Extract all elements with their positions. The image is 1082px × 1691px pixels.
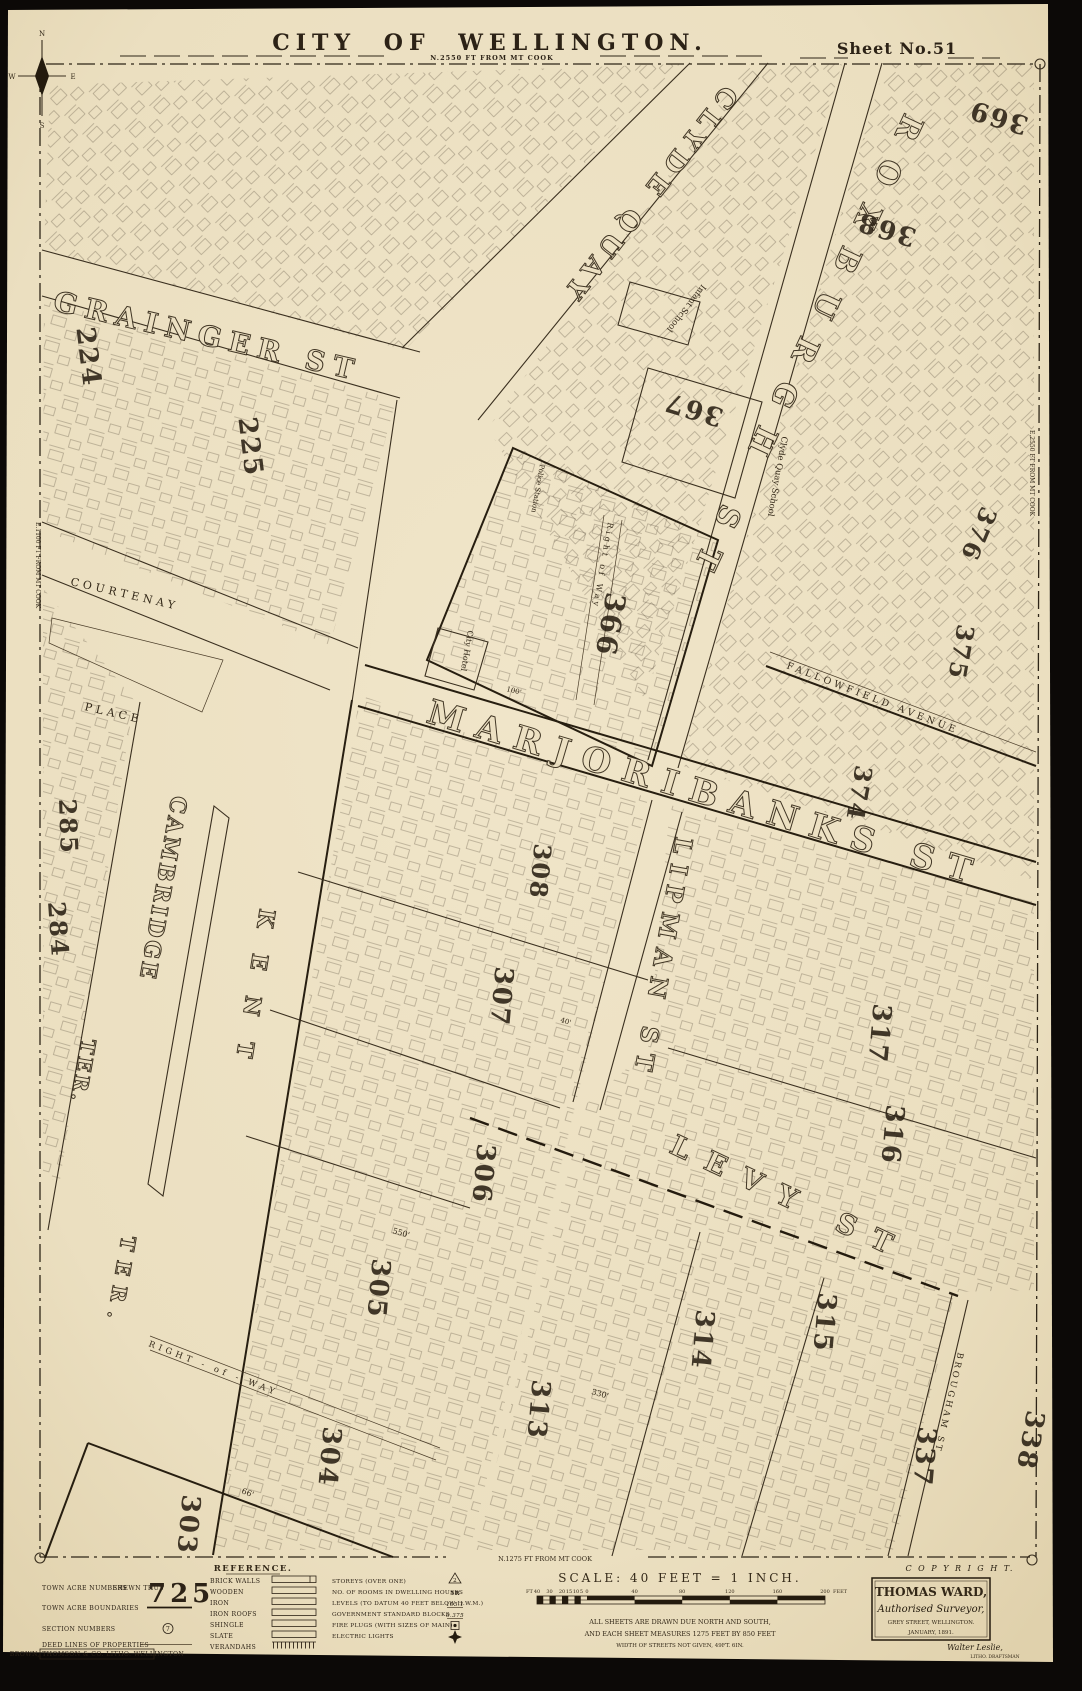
svg-text:40: 40 <box>631 1589 637 1595</box>
legend-iron-roofs: IRON ROOFS <box>210 1611 257 1618</box>
acre-308: 308 <box>524 843 558 901</box>
draftsman-name: Walter Leslie, <box>947 1643 1003 1652</box>
scale-prefix: FT <box>526 1589 533 1595</box>
map-svg: N S W E CITY OF WELLINGTON. N.2550 FT FR… <box>0 0 1082 1691</box>
legend-verandahs: VERANDAHS <box>209 1644 256 1651</box>
legend-govt-blocks: GOVERNMENT STANDARD BLOCKS <box>332 1612 450 1618</box>
svg-text:160: 160 <box>773 1589 783 1595</box>
legend-shingle: SHINGLE <box>210 1622 244 1629</box>
legend-rooms: NO. OF ROOMS IN DWELLING HOUSES <box>332 1590 463 1596</box>
acre-317: 317 <box>861 1002 896 1065</box>
scale-note-3: WIDTH OF STREETS NOT GIVEN, 49FT. 6IN. <box>616 1643 744 1649</box>
legend-litho-imprint: BROWN, THOMSON & CO. LITHO. WELLINGTON <box>10 1651 185 1658</box>
legend-deed-lines: DEED LINES OF PROPERTIES <box>42 1642 149 1649</box>
legend-section-numbers: SECTION NUMBERS <box>42 1626 115 1633</box>
legend-fire-plugs: FIRE PLUGS (WITH SIZES OF MAIN) <box>332 1622 453 1629</box>
edge-note-left: E.1100 FT FROM MT COOK <box>34 522 41 609</box>
acre-284: 284 <box>42 900 75 958</box>
acre-314: 314 <box>684 1308 719 1371</box>
acre-313: 313 <box>520 1378 555 1441</box>
legend-iron: IRON <box>210 1600 229 1607</box>
svg-text:5: 5 <box>580 1589 583 1595</box>
svg-text:40: 40 <box>534 1589 540 1595</box>
acre-303: 303 <box>170 1493 205 1556</box>
rooms-symbol: 5R <box>450 1591 459 1597</box>
compass-e: E <box>70 73 75 81</box>
survey-date: JANUARY, 1891. <box>907 1630 954 1636</box>
acre-337: 337 <box>906 1425 941 1488</box>
svg-text:120: 120 <box>725 1589 735 1595</box>
svg-text:15: 15 <box>566 1589 572 1595</box>
acre-316: 316 <box>874 1103 909 1166</box>
compass-n: N <box>39 30 45 38</box>
svg-text:0: 0 <box>585 1589 588 1595</box>
compass-s: S <box>40 122 45 130</box>
surveyor-name: THOMAS WARD, <box>875 1585 987 1599</box>
legend-verandah-swatch <box>272 1642 316 1649</box>
acre-315: 315 <box>806 1291 841 1354</box>
scale-suffix: FEET <box>833 1589 848 1595</box>
acre-304: 304 <box>311 1425 346 1488</box>
svg-text:30: 30 <box>546 1589 552 1595</box>
page-subtitle: N.2550 FT FROM MT COOK <box>430 54 553 62</box>
legend-electric-lights: ELECTRIC LIGHTS <box>332 1634 394 1640</box>
acre-305: 305 <box>360 1257 395 1320</box>
levels-symbol: 105.1 <box>446 1602 464 1608</box>
edge-note-bottom: N.1275 FT FROM MT COOK <box>498 1555 592 1563</box>
surveyor-address: GREY STREET, WELLINGTON. <box>888 1620 975 1626</box>
svg-text:20: 20 <box>559 1589 565 1595</box>
legend-section-sample: 7 <box>166 1626 170 1633</box>
scanned-map-sheet: N S W E CITY OF WELLINGTON. N.2550 FT FR… <box>0 0 1082 1691</box>
govt-blocks-symbol: 0.375 <box>446 1613 464 1619</box>
compass-w: W <box>8 73 16 81</box>
legend-storeys: STOREYS (OVER ONE) <box>332 1578 406 1585</box>
legend-wooden: WOODEN <box>210 1589 244 1596</box>
scale-note-1: ALL SHEETS ARE DRAWN DUE NORTH AND SOUTH… <box>588 1618 771 1626</box>
legend-town-acre-boundaries: TOWN ACRE BOUNDARIES <box>42 1605 139 1612</box>
page-title: CITY OF WELLINGTON. <box>272 30 707 56</box>
legend-brick-walls: BRICK WALLS <box>210 1578 260 1585</box>
svg-text:80: 80 <box>679 1589 685 1595</box>
svg-text:2: 2 <box>453 1578 457 1584</box>
sheet-number: Sheet No.51 <box>837 39 957 58</box>
acre-307: 307 <box>483 965 518 1028</box>
svg-text:200: 200 <box>820 1589 830 1595</box>
legend-slate: SLATE <box>210 1633 233 1640</box>
draftsman-title: LITHO. DRAFTSMAN <box>970 1654 1019 1660</box>
svg-text:10: 10 <box>573 1589 579 1595</box>
scale-note-2: AND EACH SHEET MEASURES 1275 FEET BY 850… <box>584 1630 777 1638</box>
legend-acre-sample: 725 <box>148 1579 214 1609</box>
acre-306: 306 <box>465 1142 500 1205</box>
surveyor-title: Authorised Surveyor, <box>877 1604 985 1615</box>
reference-heading: REFERENCE. <box>214 1564 293 1574</box>
acre-285: 285 <box>53 798 84 855</box>
copyright-note: C O P Y R I G H T. <box>906 1564 1015 1573</box>
scale-heading: SCALE: 40 FEET = 1 INCH. <box>558 1571 801 1585</box>
